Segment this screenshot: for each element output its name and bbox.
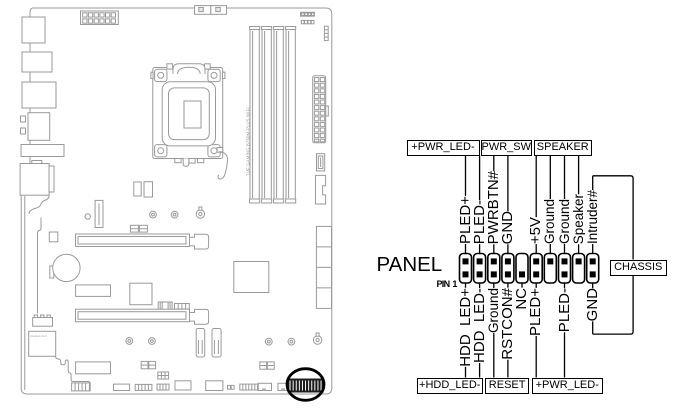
svg-text:TUF GAMING B760M-PLUS WIFI: TUF GAMING B760M-PLUS WIFI <box>246 107 251 176</box>
svg-text:Realtek ALC: Realtek ALC <box>31 334 49 338</box>
